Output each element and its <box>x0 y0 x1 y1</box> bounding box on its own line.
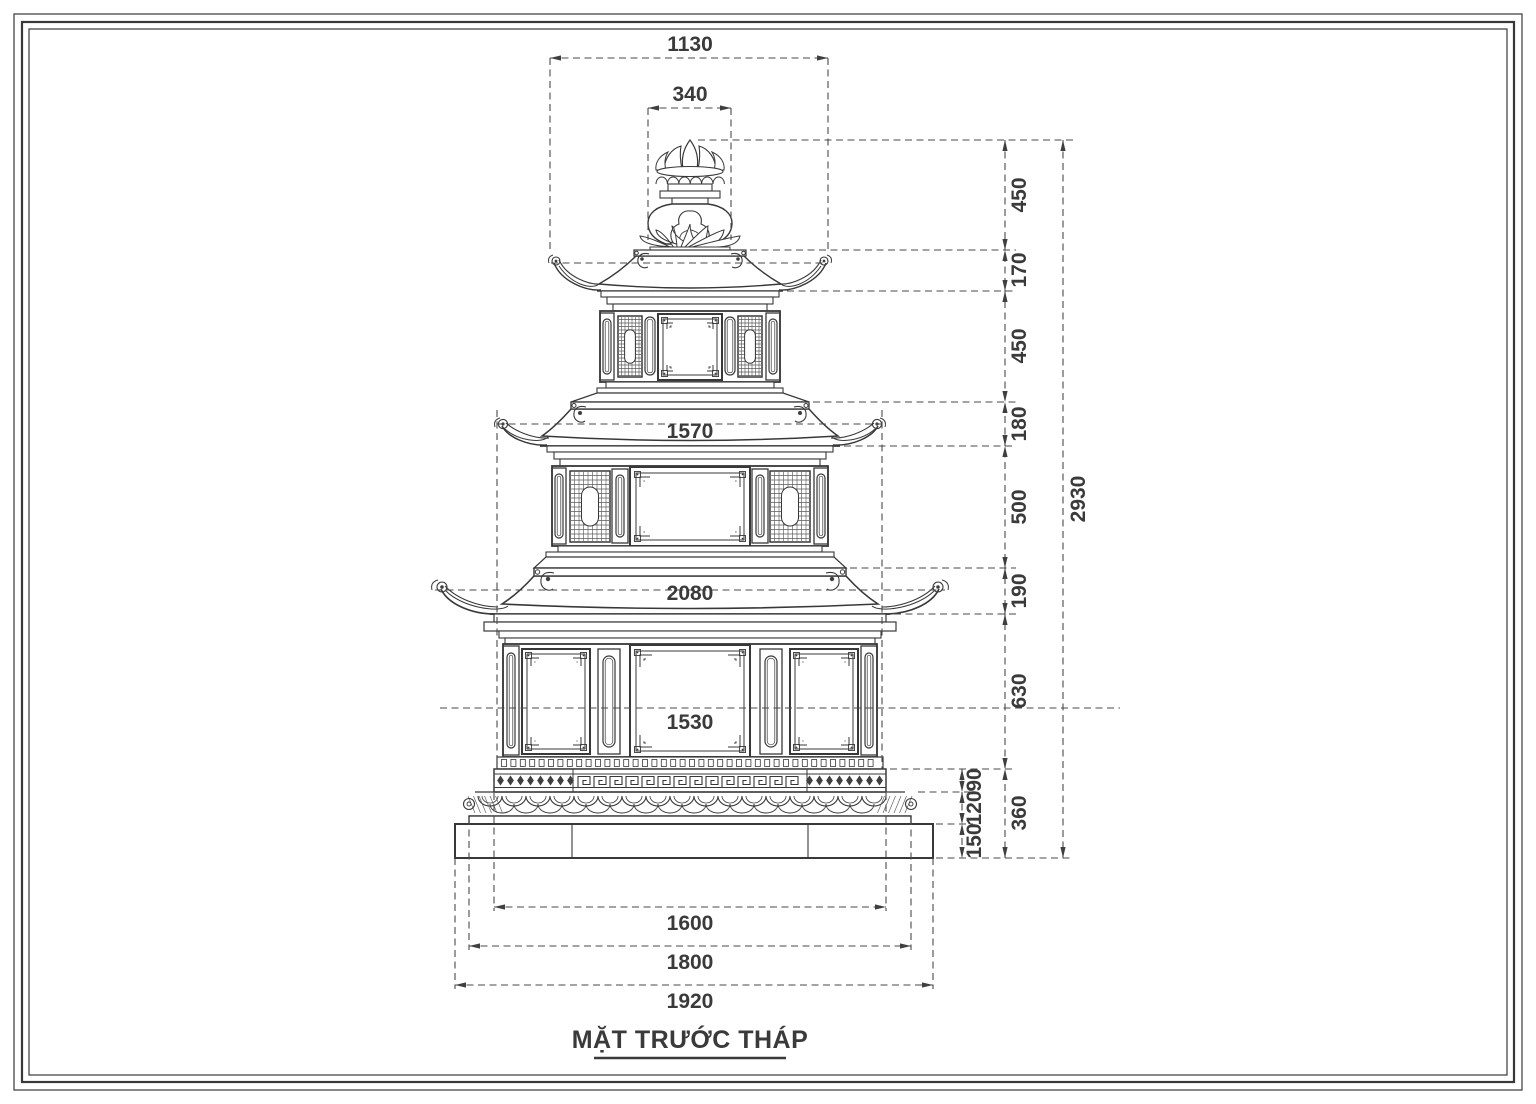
drawing-sheet: 1130 340 1570 2080 1530 1600 1800 1920 4… <box>0 0 1536 1104</box>
tier1-body <box>484 614 896 769</box>
dim-finial-width: 340 <box>672 83 707 106</box>
base-plinth <box>455 769 933 858</box>
dim-tier2-roof-width: 1570 <box>667 420 714 443</box>
dim-tier3-body-height: 450 <box>1008 328 1031 363</box>
dim-plinth-total-height: 360 <box>1008 795 1031 830</box>
dim-plinth-molding-height: 120 <box>963 790 986 825</box>
dim-total-height: 2930 <box>1067 476 1090 523</box>
dim-base-upper-width: 1600 <box>667 912 714 935</box>
lotus-finial <box>640 140 740 251</box>
tier2-body <box>534 446 846 568</box>
tier3-body <box>571 291 809 402</box>
dim-tier1-roof-width: 2080 <box>667 582 714 605</box>
dim-tier3-roof-height: 170 <box>1008 252 1031 287</box>
drawing-title: MẶT TRƯỚC THÁP <box>572 1024 809 1054</box>
dim-plinth-band-height: 90 <box>963 768 986 791</box>
dim-tier1-body-height: 630 <box>1008 673 1031 708</box>
dim-tier1-body-width: 1530 <box>667 711 714 734</box>
tier3-roof <box>549 250 832 291</box>
dim-tier1-roof-height: 190 <box>1008 573 1031 608</box>
dim-plinth-slab-height: 150 <box>963 823 986 858</box>
elevation-drawing: 1130 340 1570 2080 1530 1600 1800 1920 4… <box>0 0 1536 1104</box>
title-block: MẶT TRƯỚC THÁP <box>572 1024 809 1058</box>
dim-tier2-body-height: 500 <box>1008 489 1031 524</box>
dim-tier2-roof-height: 180 <box>1008 406 1031 441</box>
dim-top-roof-width: 1130 <box>667 33 713 56</box>
dim-finial-height: 450 <box>1008 177 1031 212</box>
dim-base-middle-width: 1800 <box>667 951 714 974</box>
dim-base-lower-width: 1920 <box>667 990 714 1013</box>
